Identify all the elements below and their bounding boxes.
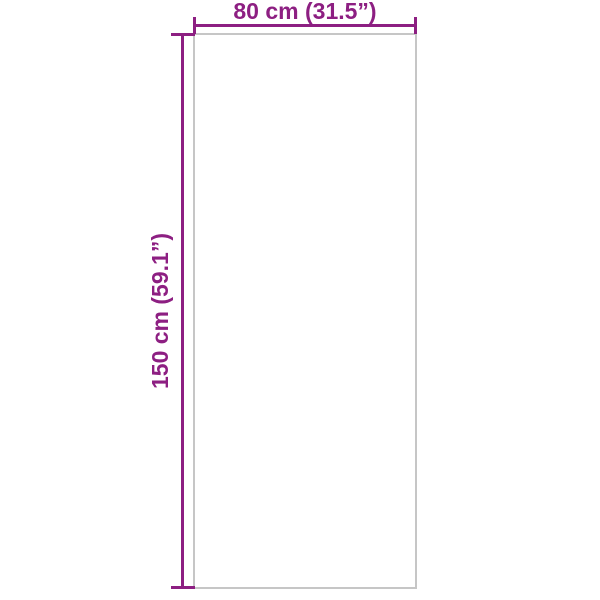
height-dimension-label: 150 cm (59.1”) <box>148 33 172 589</box>
width-dimension-line <box>193 24 417 27</box>
product-dimension-diagram: 80 cm (31.5”) 150 cm (59.1”) <box>0 0 600 600</box>
height-dimension-tick-bottom <box>171 586 195 589</box>
product-outline <box>193 33 417 589</box>
width-dimension-label: 80 cm (31.5”) <box>193 0 417 23</box>
height-dimension-tick-top <box>171 33 195 36</box>
height-dimension-line <box>181 33 184 589</box>
